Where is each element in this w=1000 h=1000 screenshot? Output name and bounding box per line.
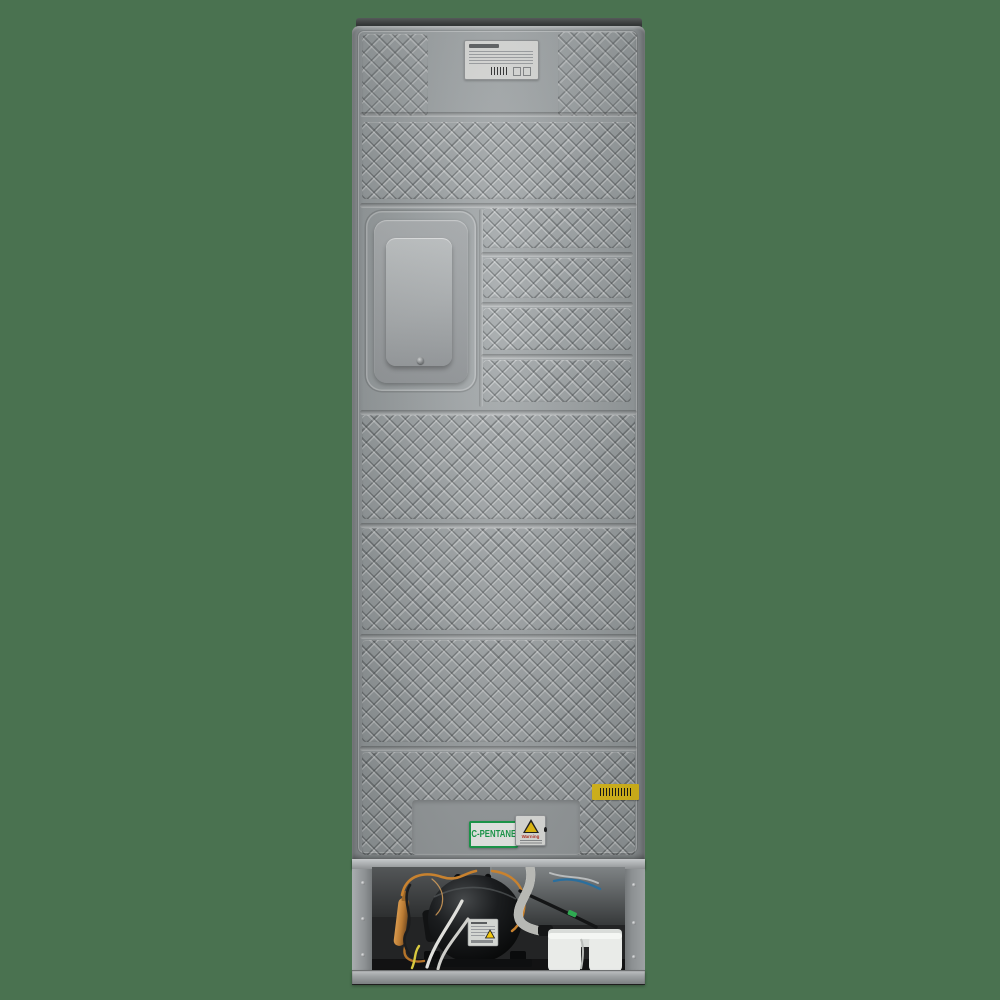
panel-seam [481, 302, 633, 307]
diamond-texture-band [362, 34, 428, 116]
panel-seam [481, 252, 633, 257]
rating-plate [464, 40, 539, 80]
diamond-texture-band [362, 415, 635, 519]
c-pentane-sticker: C-PENTANE [469, 821, 518, 848]
panel-seam [481, 354, 633, 359]
fire-warning-sticker: Warning [515, 815, 546, 846]
panel-seam [360, 112, 637, 117]
diamond-texture-band [483, 258, 631, 298]
diamond-texture-band [362, 640, 635, 742]
manufacturer-logo [469, 44, 499, 48]
side-wall-left [352, 869, 374, 972]
bottom-rail [352, 970, 645, 984]
barcode-sticker [592, 784, 639, 800]
panel-seam [360, 746, 637, 751]
diamond-texture-band [362, 528, 635, 630]
access-cover-mid [374, 220, 468, 383]
diamond-texture-band [558, 32, 637, 116]
photo-backdrop: C-PENTANE Warning [0, 0, 1000, 1000]
machine-compartment [352, 859, 645, 985]
diamond-texture-band [483, 360, 631, 402]
side-wall-right [623, 869, 645, 972]
rating-plate-fine-print [469, 51, 533, 65]
rating-plate-barcode [491, 67, 509, 75]
diamond-texture-band [362, 122, 635, 199]
c-pentane-label: C-PENTANE [471, 829, 516, 840]
flame-warning-triangle-icon [523, 819, 539, 833]
diamond-texture-band [483, 308, 631, 350]
panel-seam [360, 634, 637, 639]
embossed-access-cover [366, 211, 476, 391]
back-panel: C-PENTANE Warning [352, 26, 645, 859]
warning-label: Warning [522, 834, 540, 839]
access-cover-pillow [386, 238, 452, 366]
warning-fine-print [520, 840, 542, 845]
barcode-lines [600, 788, 632, 796]
certification-mark [513, 67, 521, 76]
cover-screw [417, 357, 424, 364]
compartment-contents [372, 867, 625, 973]
certification-mark [523, 67, 531, 76]
diamond-texture-band [483, 208, 631, 248]
compressor-label [468, 919, 498, 946]
